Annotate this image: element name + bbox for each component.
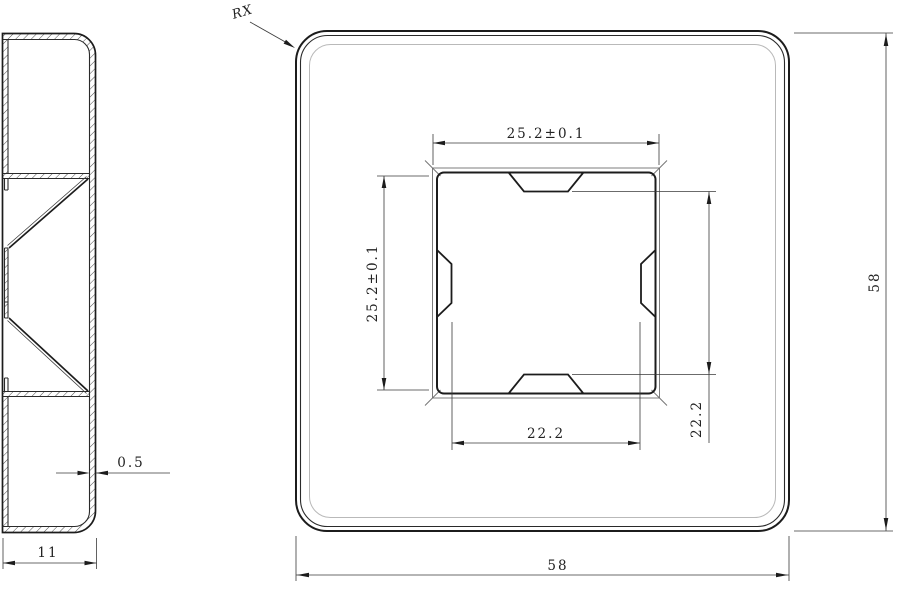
opening-inner-edge bbox=[437, 173, 656, 394]
arrowhead bbox=[707, 362, 712, 374]
corner-radius-label: RX bbox=[229, 2, 254, 23]
arrowhead bbox=[776, 573, 788, 578]
slant-face-upper bbox=[9, 179, 88, 248]
latch-bump-right bbox=[641, 250, 656, 317]
drawing-canvas: 0.5 11 RX bbox=[0, 0, 900, 589]
dim-inner-span-height: 22.2 bbox=[572, 192, 716, 444]
dim-inner-span-width: 22.2 bbox=[452, 322, 640, 450]
arrowhead bbox=[85, 561, 97, 566]
arrowhead bbox=[433, 141, 445, 146]
dim-overall-width-label: 58 bbox=[547, 558, 568, 574]
arrowhead bbox=[3, 561, 15, 566]
arrowhead bbox=[884, 34, 889, 46]
dim-wall-thickness-label: 0.5 bbox=[117, 455, 144, 471]
latch-trapezoid-top bbox=[509, 173, 583, 192]
latch-tab-lower bbox=[5, 378, 9, 391]
slant-face-lower bbox=[9, 318, 88, 391]
latch-tab-upper bbox=[5, 179, 9, 191]
arrowhead bbox=[297, 573, 309, 578]
division-hatch-bottom bbox=[3, 392, 90, 397]
arrowhead bbox=[884, 518, 889, 530]
arrowhead bbox=[628, 441, 640, 446]
dim-overall-height-label: 58 bbox=[867, 271, 883, 292]
arrowhead bbox=[96, 471, 108, 476]
arrowhead bbox=[78, 471, 90, 476]
side-section-view: 0.5 11 bbox=[3, 34, 171, 570]
slant-face-upper-edge bbox=[8, 177, 87, 246]
arrowhead bbox=[647, 141, 659, 146]
arrowhead bbox=[382, 378, 387, 390]
wall-section-hatch bbox=[3, 34, 96, 533]
arrowhead bbox=[382, 176, 387, 188]
arrowhead bbox=[452, 441, 464, 446]
front-view: RX 25.2±0.1 25.2±0.1 bbox=[229, 2, 893, 581]
technical-drawing: 0.5 11 RX bbox=[0, 0, 900, 589]
dim-inner-span-width-label: 22.2 bbox=[527, 426, 565, 442]
side-outer-contour bbox=[3, 34, 96, 533]
dim-overall-height: 58 bbox=[794, 33, 893, 531]
dim-wall-thickness: 0.5 bbox=[56, 455, 170, 475]
slant-face-lower-edge bbox=[8, 321, 87, 394]
latch-bump-left bbox=[437, 250, 452, 317]
division-hatch-top bbox=[3, 174, 90, 179]
dim-side-width-label: 11 bbox=[37, 545, 58, 561]
dim-opening-width: 25.2±0.1 bbox=[433, 126, 659, 165]
dim-side-width: 11 bbox=[3, 538, 97, 569]
dim-opening-height: 25.2±0.1 bbox=[365, 176, 429, 390]
side-inner-contour bbox=[3, 39, 90, 526]
latch-trapezoid-bottom bbox=[509, 375, 583, 394]
dim-opening-height-label: 25.2±0.1 bbox=[365, 244, 381, 323]
opening-outer-edge bbox=[433, 168, 660, 398]
arrowhead bbox=[284, 40, 295, 48]
dim-opening-width-label: 25.2±0.1 bbox=[507, 126, 586, 142]
dim-overall-width: 58 bbox=[296, 536, 789, 581]
dim-inner-span-height-label: 22.2 bbox=[689, 400, 705, 438]
arrowhead bbox=[707, 192, 712, 204]
corner-radius-note: RX bbox=[229, 2, 295, 48]
